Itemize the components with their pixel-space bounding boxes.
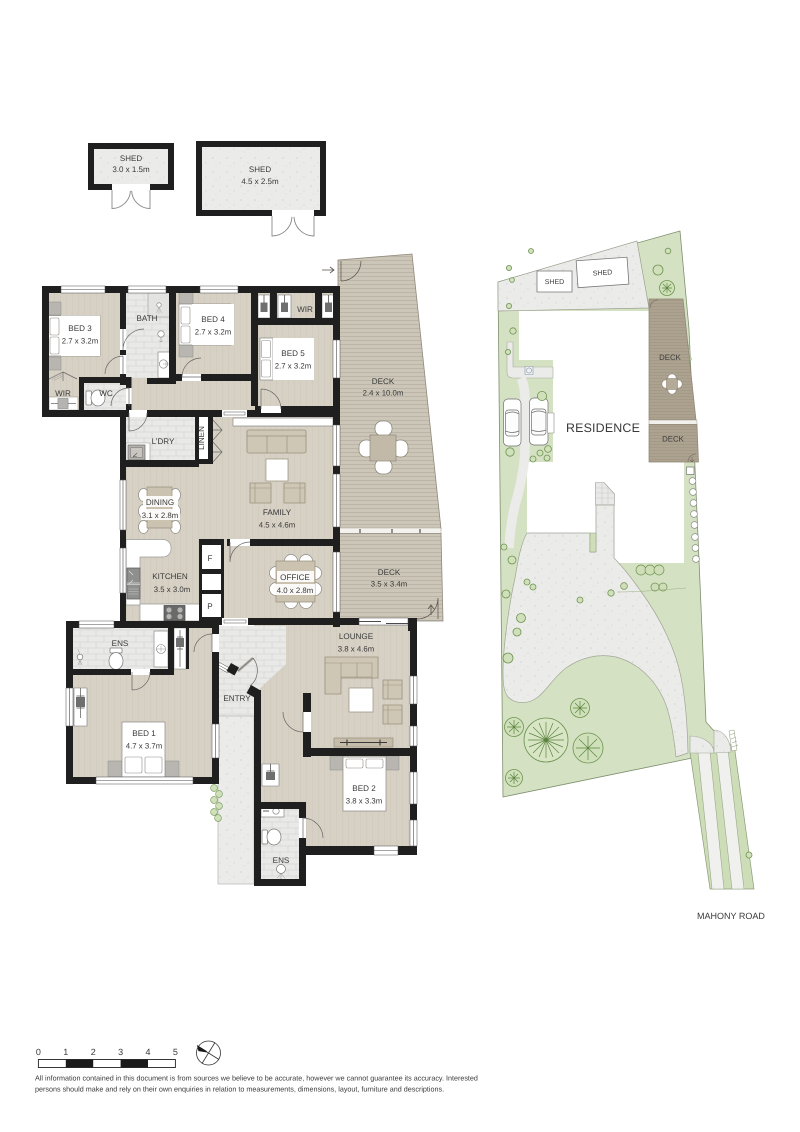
svg-text:4.5 x 2.5m: 4.5 x 2.5m: [241, 177, 279, 186]
svg-text:LINEN: LINEN: [197, 426, 206, 450]
svg-text:DECK: DECK: [662, 435, 684, 444]
svg-text:LOUNGE: LOUNGE: [339, 632, 374, 641]
svg-text:persons should make and rely o: persons should make and rely on their ow…: [35, 1085, 444, 1094]
svg-text:DECK: DECK: [378, 568, 401, 577]
svg-text:SHED: SHED: [593, 269, 613, 277]
svg-text:SHED: SHED: [120, 154, 142, 163]
svg-text:2: 2: [91, 1047, 96, 1057]
svg-text:3: 3: [118, 1047, 123, 1057]
svg-text:BED 1: BED 1: [132, 729, 156, 738]
svg-text:3.0 x 1.5m: 3.0 x 1.5m: [112, 165, 150, 174]
svg-text:BED 2: BED 2: [352, 784, 376, 793]
svg-text:DECK: DECK: [372, 377, 395, 386]
svg-text:ENS: ENS: [112, 639, 129, 648]
svg-text:KITCHEN: KITCHEN: [152, 572, 188, 581]
svg-text:3.8 x 3.3m: 3.8 x 3.3m: [346, 797, 382, 806]
svg-text:DINING: DINING: [146, 498, 174, 507]
svg-text:F: F: [208, 554, 213, 563]
svg-text:WC: WC: [99, 389, 113, 398]
svg-text:5: 5: [173, 1047, 178, 1057]
svg-text:1: 1: [63, 1047, 68, 1057]
svg-text:WIR: WIR: [55, 389, 71, 398]
svg-text:3.8 x 4.6m: 3.8 x 4.6m: [338, 645, 374, 654]
svg-text:BED 4: BED 4: [201, 315, 225, 324]
svg-text:3.5 x 3.4m: 3.5 x 3.4m: [371, 580, 407, 589]
svg-text:3.5 x 3.0m: 3.5 x 3.0m: [154, 585, 190, 594]
svg-text:WIR: WIR: [297, 305, 313, 314]
svg-text:0: 0: [36, 1047, 41, 1057]
svg-text:4.0 x 2.8m: 4.0 x 2.8m: [277, 586, 313, 595]
svg-text:SHED: SHED: [545, 279, 564, 286]
svg-text:L’DRY: L’DRY: [152, 437, 175, 446]
svg-text:2.7 x 3.2m: 2.7 x 3.2m: [195, 328, 231, 337]
svg-text:2.4 x 10.0m: 2.4 x 10.0m: [363, 389, 404, 398]
svg-text:3.1 x 2.8m: 3.1 x 2.8m: [142, 511, 178, 520]
svg-text:BED 3: BED 3: [68, 324, 92, 333]
svg-text:ENS: ENS: [273, 856, 290, 865]
svg-text:BATH: BATH: [137, 314, 158, 323]
svg-text:FAMILY: FAMILY: [263, 508, 292, 517]
svg-text:SHED: SHED: [249, 165, 271, 174]
svg-text:2.7 x 3.2m: 2.7 x 3.2m: [275, 362, 311, 371]
svg-text:4.5 x 4.6m: 4.5 x 4.6m: [259, 521, 295, 530]
svg-text:RESIDENCE: RESIDENCE: [566, 421, 640, 435]
svg-text:P: P: [207, 602, 212, 611]
svg-text:2.7 x 3.2m: 2.7 x 3.2m: [62, 337, 98, 346]
svg-text:ENTRY: ENTRY: [223, 694, 251, 703]
svg-text:All information contained in t: All information contained in this docume…: [35, 1074, 478, 1083]
svg-text:4: 4: [145, 1047, 150, 1057]
svg-text:DECK: DECK: [659, 353, 681, 362]
svg-text:MAHONY ROAD: MAHONY ROAD: [697, 911, 765, 921]
svg-text:OFFICE: OFFICE: [280, 573, 310, 582]
svg-text:BED 5: BED 5: [281, 349, 305, 358]
svg-text:4.7 x 3.7m: 4.7 x 3.7m: [126, 742, 162, 751]
